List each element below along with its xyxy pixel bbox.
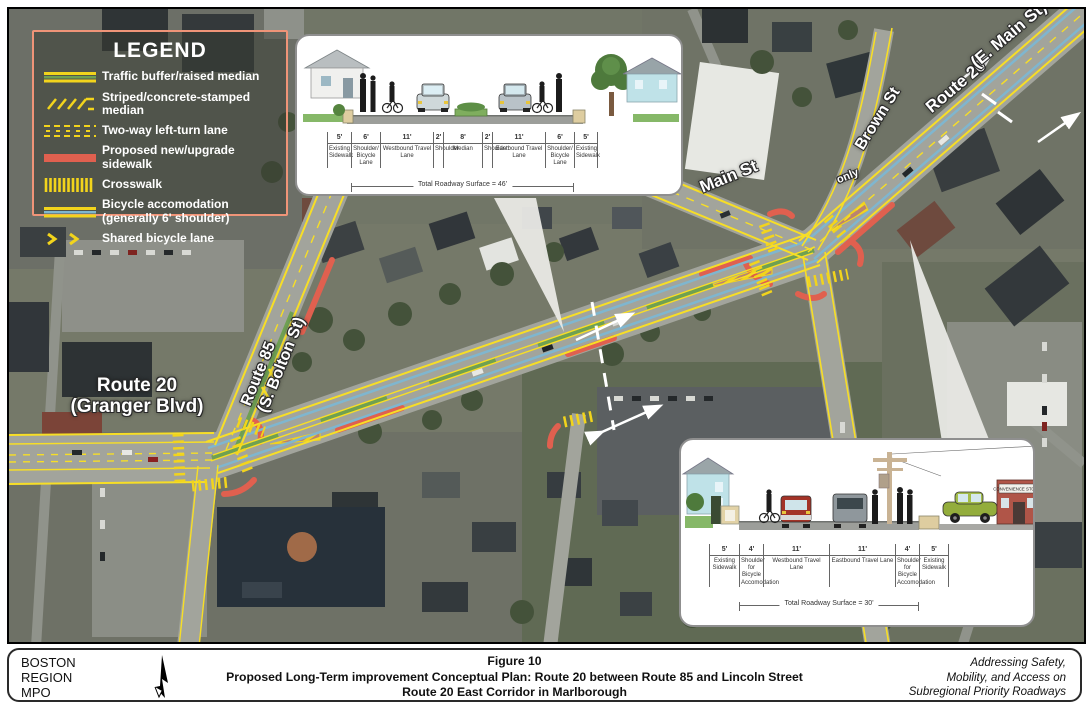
legend-item: Crosswalk — [44, 178, 276, 192]
figure-line1: Proposed Long-Term improvement Conceptua… — [199, 670, 830, 686]
shared-bike-lane-swatch-icon — [44, 232, 102, 246]
figure-title: Figure 10 Proposed Long-Term improvement… — [199, 654, 830, 701]
cross-section-top-inset: 5'Existing Sidewalk 6'Shoulder/ Bicycle … — [295, 34, 683, 196]
figure-canvas: { "legend": { "title": "LEGEND", "items"… — [0, 0, 1089, 710]
legend-item: Traffic buffer/raised median — [44, 70, 276, 84]
legend-item: Shared bicycle lane — [44, 232, 276, 246]
label-route20-granger: Route 20 (Granger Blvd) — [17, 375, 257, 418]
figure-line2: Route 20 East Corridor in Marlborough — [199, 685, 830, 701]
legend-title: LEGEND — [44, 39, 276, 63]
crosswalk-swatch-icon — [44, 178, 102, 192]
convenience-store-sign: CONVENIENCE STORE — [993, 487, 1035, 492]
cross-section-top-drawing — [297, 36, 683, 130]
legend-item: Striped/concrete-stamped median — [44, 91, 276, 118]
org-name: BOSTON REGION MPO — [21, 656, 76, 701]
program-tagline: Addressing Safety, Mobility, and Access … — [909, 656, 1066, 700]
cross-section-bottom-drawing: CONVENIENCE STORE — [681, 440, 1035, 542]
striped-median-swatch-icon — [44, 97, 102, 111]
dimension-row: 5'Existing Sidewalk 4'Shoulder for Bicyc… — [709, 544, 949, 587]
legend-panel: LEGEND Traffic buffer/raised median Stri… — [32, 30, 288, 216]
bicycle-accommodation-swatch-icon — [44, 205, 102, 219]
aerial-plan-map: Route 20 (Granger Blvd) Route 85 (S. Bol… — [7, 7, 1086, 644]
total-roadway-dimension: Total Roadway Surface = 46' — [351, 186, 574, 187]
sidewalk-swatch-icon — [44, 151, 102, 165]
two-way-left-turn-swatch-icon — [44, 124, 102, 138]
dimension-row: 5'Existing Sidewalk 6'Shoulder/ Bicycle … — [327, 132, 598, 168]
legend-item: Two-way left-turn lane — [44, 124, 276, 138]
total-roadway-dimension: Total Roadway Surface = 30' — [739, 605, 919, 606]
figure-number: Figure 10 — [199, 654, 830, 670]
north-arrow-icon — [147, 653, 177, 701]
traffic-buffer-swatch-icon — [44, 70, 102, 84]
cross-section-bottom-inset: CONVENIENCE STORE 5'Existing Sidewalk 4'… — [679, 438, 1035, 627]
title-block: BOSTON REGION MPO Figure 10 Proposed Lon… — [7, 648, 1082, 702]
legend-item: Bicycle accomodation (generally 6' shoul… — [44, 198, 276, 225]
legend-item: Proposed new/upgrade sidewalk — [44, 144, 276, 171]
